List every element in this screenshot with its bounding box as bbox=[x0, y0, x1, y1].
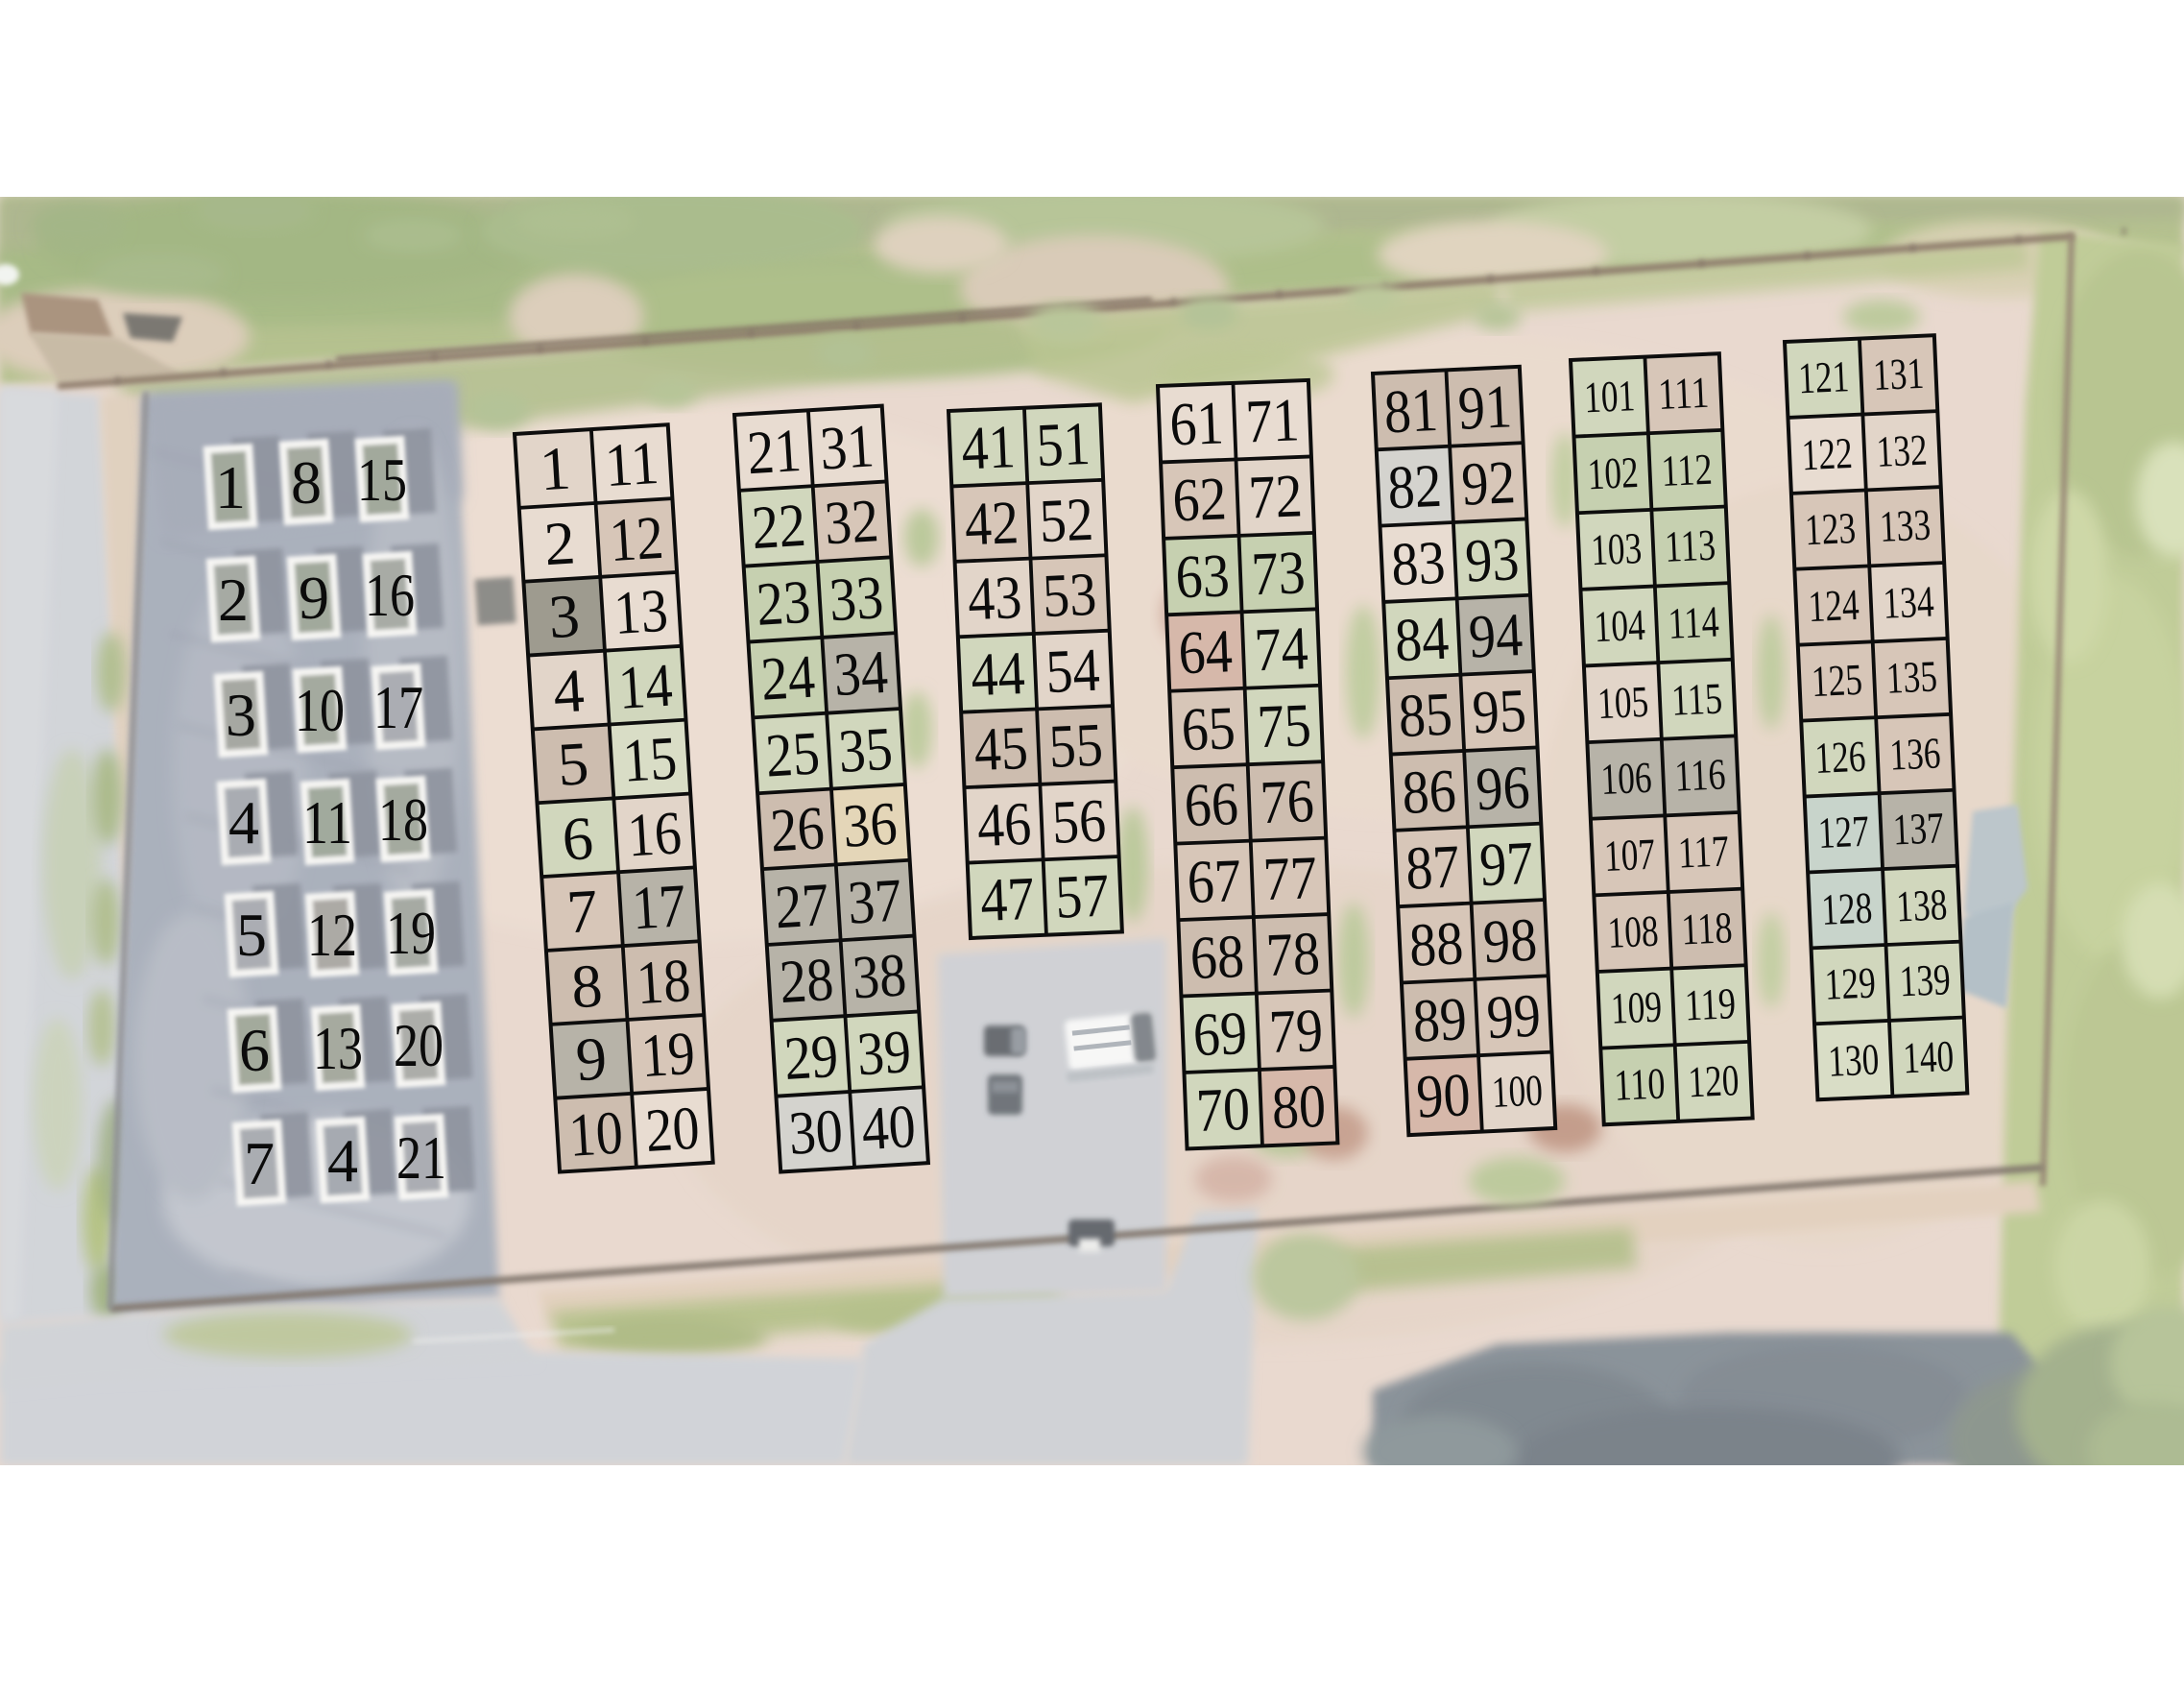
svg-text:134: 134 bbox=[1882, 577, 1934, 628]
svg-text:100: 100 bbox=[1491, 1066, 1544, 1117]
svg-text:90: 90 bbox=[1415, 1060, 1472, 1131]
svg-text:117: 117 bbox=[1677, 826, 1730, 877]
svg-text:28: 28 bbox=[778, 945, 835, 1016]
svg-text:65: 65 bbox=[1180, 693, 1236, 763]
svg-text:84: 84 bbox=[1393, 604, 1450, 675]
svg-text:125: 125 bbox=[1811, 655, 1863, 706]
svg-text:82: 82 bbox=[1386, 451, 1443, 522]
svg-text:67: 67 bbox=[1186, 846, 1242, 916]
svg-text:132: 132 bbox=[1875, 425, 1928, 476]
svg-text:140: 140 bbox=[1902, 1031, 1955, 1082]
svg-text:130: 130 bbox=[1827, 1034, 1880, 1085]
svg-text:136: 136 bbox=[1888, 728, 1941, 779]
svg-text:112: 112 bbox=[1661, 445, 1714, 495]
svg-text:122: 122 bbox=[1801, 428, 1854, 479]
svg-text:123: 123 bbox=[1804, 503, 1857, 554]
svg-text:113: 113 bbox=[1664, 520, 1716, 571]
svg-text:115: 115 bbox=[1670, 673, 1723, 724]
svg-text:38: 38 bbox=[851, 940, 908, 1011]
svg-text:99: 99 bbox=[1485, 981, 1542, 1052]
svg-text:62: 62 bbox=[1171, 464, 1228, 534]
svg-text:127: 127 bbox=[1817, 807, 1870, 857]
svg-text:137: 137 bbox=[1892, 803, 1945, 854]
svg-text:5: 5 bbox=[556, 729, 590, 799]
svg-text:110: 110 bbox=[1613, 1058, 1666, 1109]
svg-text:11: 11 bbox=[302, 788, 352, 856]
svg-text:55: 55 bbox=[1047, 711, 1104, 781]
svg-text:10: 10 bbox=[295, 676, 345, 744]
svg-text:68: 68 bbox=[1189, 922, 1246, 992]
svg-text:24: 24 bbox=[759, 641, 817, 712]
svg-text:107: 107 bbox=[1603, 830, 1656, 880]
svg-text:31: 31 bbox=[818, 411, 876, 482]
svg-text:19: 19 bbox=[386, 899, 436, 967]
svg-text:64: 64 bbox=[1177, 616, 1234, 687]
svg-text:121: 121 bbox=[1797, 351, 1850, 402]
svg-text:21: 21 bbox=[396, 1123, 446, 1192]
svg-text:22: 22 bbox=[750, 491, 807, 562]
svg-text:5: 5 bbox=[236, 901, 267, 969]
svg-text:4: 4 bbox=[228, 788, 259, 856]
svg-text:61: 61 bbox=[1168, 388, 1225, 458]
svg-text:81: 81 bbox=[1382, 375, 1439, 446]
svg-text:8: 8 bbox=[569, 952, 604, 1022]
svg-text:91: 91 bbox=[1456, 372, 1513, 443]
svg-text:3: 3 bbox=[547, 581, 582, 651]
svg-text:108: 108 bbox=[1606, 906, 1659, 957]
svg-text:36: 36 bbox=[841, 789, 899, 860]
svg-text:1: 1 bbox=[215, 453, 246, 521]
svg-text:17: 17 bbox=[630, 871, 687, 942]
svg-text:66: 66 bbox=[1183, 769, 1239, 839]
svg-text:80: 80 bbox=[1271, 1072, 1328, 1142]
svg-text:116: 116 bbox=[1673, 749, 1726, 800]
svg-text:75: 75 bbox=[1256, 690, 1312, 760]
svg-text:70: 70 bbox=[1195, 1074, 1252, 1145]
svg-text:11: 11 bbox=[603, 428, 660, 499]
svg-text:74: 74 bbox=[1253, 614, 1309, 684]
svg-text:139: 139 bbox=[1899, 954, 1952, 1005]
svg-text:7: 7 bbox=[564, 877, 599, 947]
svg-text:8: 8 bbox=[291, 448, 322, 517]
svg-text:93: 93 bbox=[1464, 524, 1521, 595]
svg-text:56: 56 bbox=[1051, 786, 1108, 856]
svg-text:98: 98 bbox=[1481, 905, 1538, 977]
svg-text:52: 52 bbox=[1038, 485, 1094, 555]
svg-text:69: 69 bbox=[1192, 999, 1249, 1069]
svg-text:25: 25 bbox=[764, 718, 822, 789]
svg-text:18: 18 bbox=[378, 785, 428, 854]
svg-text:118: 118 bbox=[1680, 903, 1733, 953]
svg-text:79: 79 bbox=[1268, 996, 1325, 1066]
svg-text:23: 23 bbox=[755, 567, 812, 639]
svg-text:14: 14 bbox=[616, 651, 674, 722]
svg-text:19: 19 bbox=[639, 1019, 697, 1090]
svg-text:85: 85 bbox=[1397, 680, 1453, 751]
svg-text:42: 42 bbox=[963, 488, 1020, 558]
svg-text:27: 27 bbox=[773, 870, 830, 941]
svg-text:12: 12 bbox=[608, 503, 665, 574]
svg-text:29: 29 bbox=[782, 1022, 840, 1093]
svg-text:46: 46 bbox=[976, 789, 1033, 859]
svg-text:96: 96 bbox=[1475, 753, 1531, 824]
svg-text:37: 37 bbox=[846, 865, 903, 936]
svg-text:103: 103 bbox=[1590, 523, 1643, 574]
svg-text:2: 2 bbox=[542, 508, 577, 578]
svg-text:17: 17 bbox=[373, 673, 423, 741]
svg-text:63: 63 bbox=[1174, 541, 1231, 611]
svg-text:109: 109 bbox=[1610, 982, 1663, 1033]
svg-text:13: 13 bbox=[313, 1014, 363, 1082]
svg-text:9: 9 bbox=[574, 1024, 609, 1094]
svg-text:126: 126 bbox=[1813, 732, 1866, 783]
svg-text:20: 20 bbox=[643, 1094, 701, 1165]
svg-text:77: 77 bbox=[1261, 843, 1318, 913]
svg-text:114: 114 bbox=[1667, 597, 1719, 648]
svg-text:88: 88 bbox=[1407, 908, 1464, 979]
svg-text:32: 32 bbox=[823, 486, 880, 557]
svg-text:86: 86 bbox=[1401, 756, 1457, 827]
svg-text:13: 13 bbox=[612, 576, 669, 647]
svg-text:4: 4 bbox=[327, 1126, 358, 1194]
svg-text:20: 20 bbox=[394, 1011, 444, 1079]
svg-text:120: 120 bbox=[1687, 1055, 1740, 1106]
svg-text:1: 1 bbox=[538, 434, 572, 504]
svg-text:76: 76 bbox=[1259, 766, 1315, 836]
svg-text:34: 34 bbox=[832, 638, 890, 709]
svg-text:135: 135 bbox=[1885, 651, 1938, 702]
svg-text:94: 94 bbox=[1467, 600, 1524, 671]
svg-text:47: 47 bbox=[979, 864, 1036, 934]
svg-text:102: 102 bbox=[1587, 447, 1640, 498]
svg-text:54: 54 bbox=[1044, 636, 1101, 706]
svg-text:39: 39 bbox=[855, 1017, 913, 1088]
svg-text:16: 16 bbox=[626, 798, 684, 869]
svg-text:21: 21 bbox=[745, 416, 803, 487]
svg-text:35: 35 bbox=[836, 714, 894, 785]
svg-text:41: 41 bbox=[960, 412, 1017, 482]
svg-text:18: 18 bbox=[635, 946, 692, 1017]
svg-text:45: 45 bbox=[972, 713, 1029, 784]
svg-text:111: 111 bbox=[1657, 368, 1710, 419]
svg-text:51: 51 bbox=[1035, 409, 1092, 479]
svg-text:138: 138 bbox=[1895, 880, 1948, 930]
svg-text:128: 128 bbox=[1820, 883, 1873, 934]
svg-text:95: 95 bbox=[1471, 676, 1527, 747]
svg-text:6: 6 bbox=[239, 1016, 270, 1084]
svg-text:2: 2 bbox=[218, 566, 249, 634]
svg-text:30: 30 bbox=[787, 1097, 845, 1168]
svg-text:105: 105 bbox=[1596, 677, 1649, 728]
svg-text:7: 7 bbox=[244, 1129, 275, 1197]
svg-text:15: 15 bbox=[621, 723, 679, 794]
svg-text:12: 12 bbox=[307, 901, 357, 969]
svg-text:133: 133 bbox=[1879, 500, 1932, 551]
svg-text:71: 71 bbox=[1244, 385, 1301, 455]
svg-text:40: 40 bbox=[859, 1092, 917, 1163]
svg-text:104: 104 bbox=[1594, 600, 1646, 651]
svg-text:119: 119 bbox=[1684, 978, 1737, 1029]
svg-text:57: 57 bbox=[1054, 860, 1111, 930]
svg-text:10: 10 bbox=[567, 1098, 625, 1170]
svg-text:124: 124 bbox=[1807, 580, 1860, 631]
svg-text:44: 44 bbox=[970, 639, 1026, 709]
svg-text:89: 89 bbox=[1411, 984, 1468, 1055]
svg-text:101: 101 bbox=[1583, 371, 1636, 422]
svg-text:72: 72 bbox=[1247, 461, 1304, 531]
svg-text:4: 4 bbox=[551, 656, 586, 726]
svg-text:97: 97 bbox=[1478, 829, 1535, 900]
svg-text:78: 78 bbox=[1264, 919, 1321, 989]
svg-text:83: 83 bbox=[1390, 528, 1447, 599]
svg-text:106: 106 bbox=[1599, 753, 1652, 804]
svg-text:129: 129 bbox=[1824, 958, 1877, 1009]
svg-text:33: 33 bbox=[828, 563, 885, 634]
svg-text:15: 15 bbox=[357, 446, 407, 514]
svg-text:26: 26 bbox=[768, 793, 826, 864]
svg-text:131: 131 bbox=[1872, 349, 1925, 399]
svg-text:73: 73 bbox=[1250, 538, 1307, 608]
svg-text:53: 53 bbox=[1042, 560, 1098, 630]
svg-text:16: 16 bbox=[365, 561, 415, 629]
svg-text:92: 92 bbox=[1460, 447, 1517, 518]
svg-text:9: 9 bbox=[299, 564, 329, 632]
svg-text:6: 6 bbox=[561, 804, 595, 874]
svg-text:43: 43 bbox=[967, 563, 1023, 633]
svg-text:3: 3 bbox=[226, 681, 256, 749]
svg-text:87: 87 bbox=[1404, 832, 1461, 903]
